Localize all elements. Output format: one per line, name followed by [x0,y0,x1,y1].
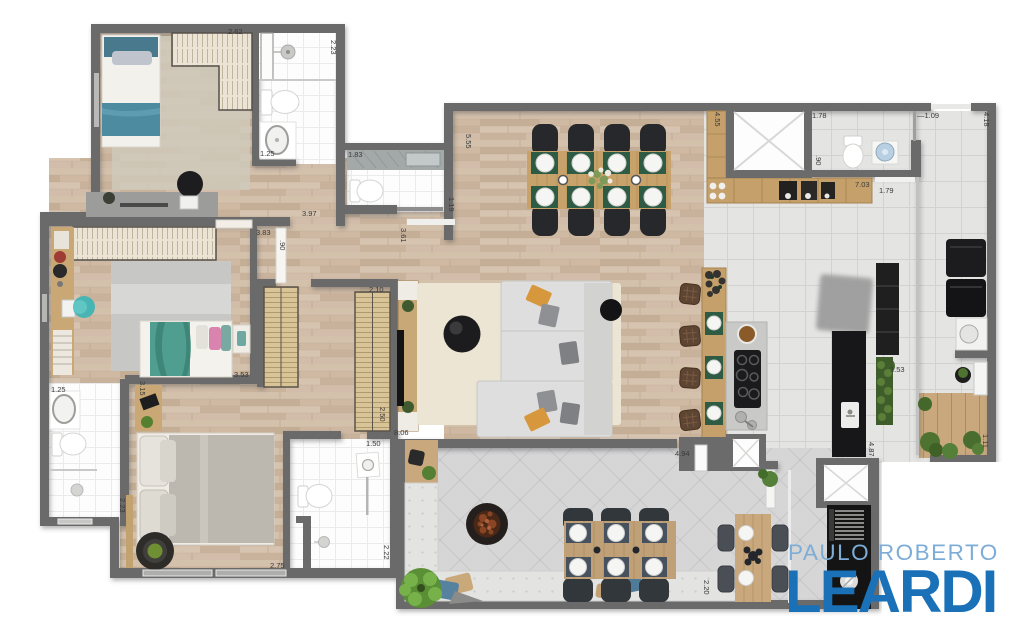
svg-text:1.53: 1.53 [890,365,905,374]
svg-text:4.87: 4.87 [867,442,876,457]
svg-text:3.53: 3.53 [234,370,249,379]
svg-text:3.15: 3.15 [138,381,147,396]
svg-text:1.83: 1.83 [348,150,363,159]
svg-text:2.23: 2.23 [118,498,127,513]
svg-text:5.55: 5.55 [464,134,473,149]
svg-text:1.11: 1.11 [981,434,990,448]
svg-text:4.94: 4.94 [675,449,690,458]
svg-text:1.25: 1.25 [51,385,66,394]
svg-text:7.03: 7.03 [855,180,870,189]
svg-text:1.78: 1.78 [812,111,827,120]
svg-text:1.79: 1.79 [879,186,894,195]
svg-text:3.97: 3.97 [302,209,317,218]
svg-text:1.25: 1.25 [260,149,275,158]
svg-text:2.20: 2.20 [702,580,711,595]
svg-text:2.50: 2.50 [378,407,387,422]
svg-text:8.06: 8.06 [394,428,409,437]
svg-text:2.75: 2.75 [270,561,285,570]
svg-text:LEARDI: LEARDI [785,558,996,625]
svg-text:1.50: 1.50 [366,439,381,448]
svg-text:4.55: 4.55 [713,112,722,127]
svg-text:1.19: 1.19 [447,197,456,212]
svg-text:.90: .90 [814,155,823,165]
svg-text:2.10: 2.10 [369,285,384,294]
svg-text:.90: .90 [278,240,287,250]
svg-text:—1.09: —1.09 [917,111,939,120]
svg-text:2.23: 2.23 [329,40,338,55]
svg-text:4.18: 4.18 [982,112,991,127]
svg-text:3.61: 3.61 [399,228,408,243]
svg-text:3.83: 3.83 [256,228,271,237]
svg-text:2.22: 2.22 [382,545,391,560]
svg-text:2.62: 2.62 [228,27,243,36]
